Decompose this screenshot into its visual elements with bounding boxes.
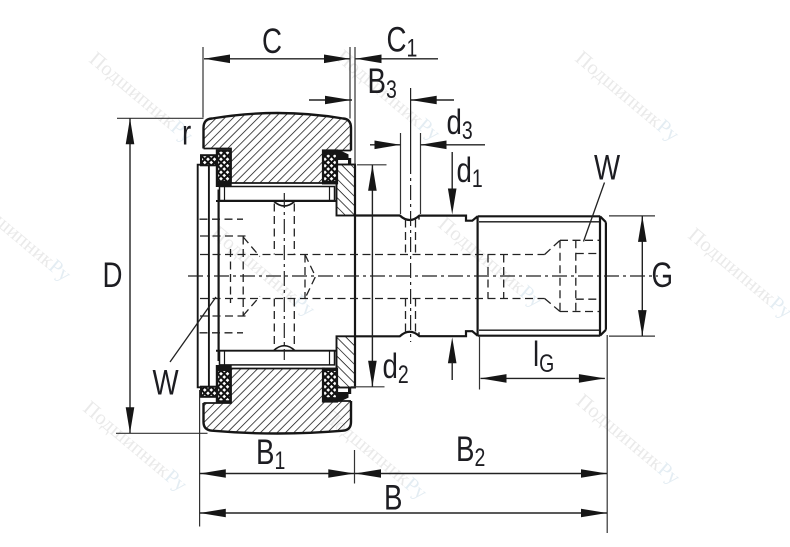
svg-text:W: W <box>153 362 179 402</box>
svg-text:W: W <box>594 147 620 187</box>
svg-text:G: G <box>652 255 674 295</box>
svg-text:C: C <box>262 21 282 61</box>
svg-text:B: B <box>384 477 402 517</box>
svg-text:D: D <box>103 255 123 295</box>
svg-text:r: r <box>182 112 192 152</box>
